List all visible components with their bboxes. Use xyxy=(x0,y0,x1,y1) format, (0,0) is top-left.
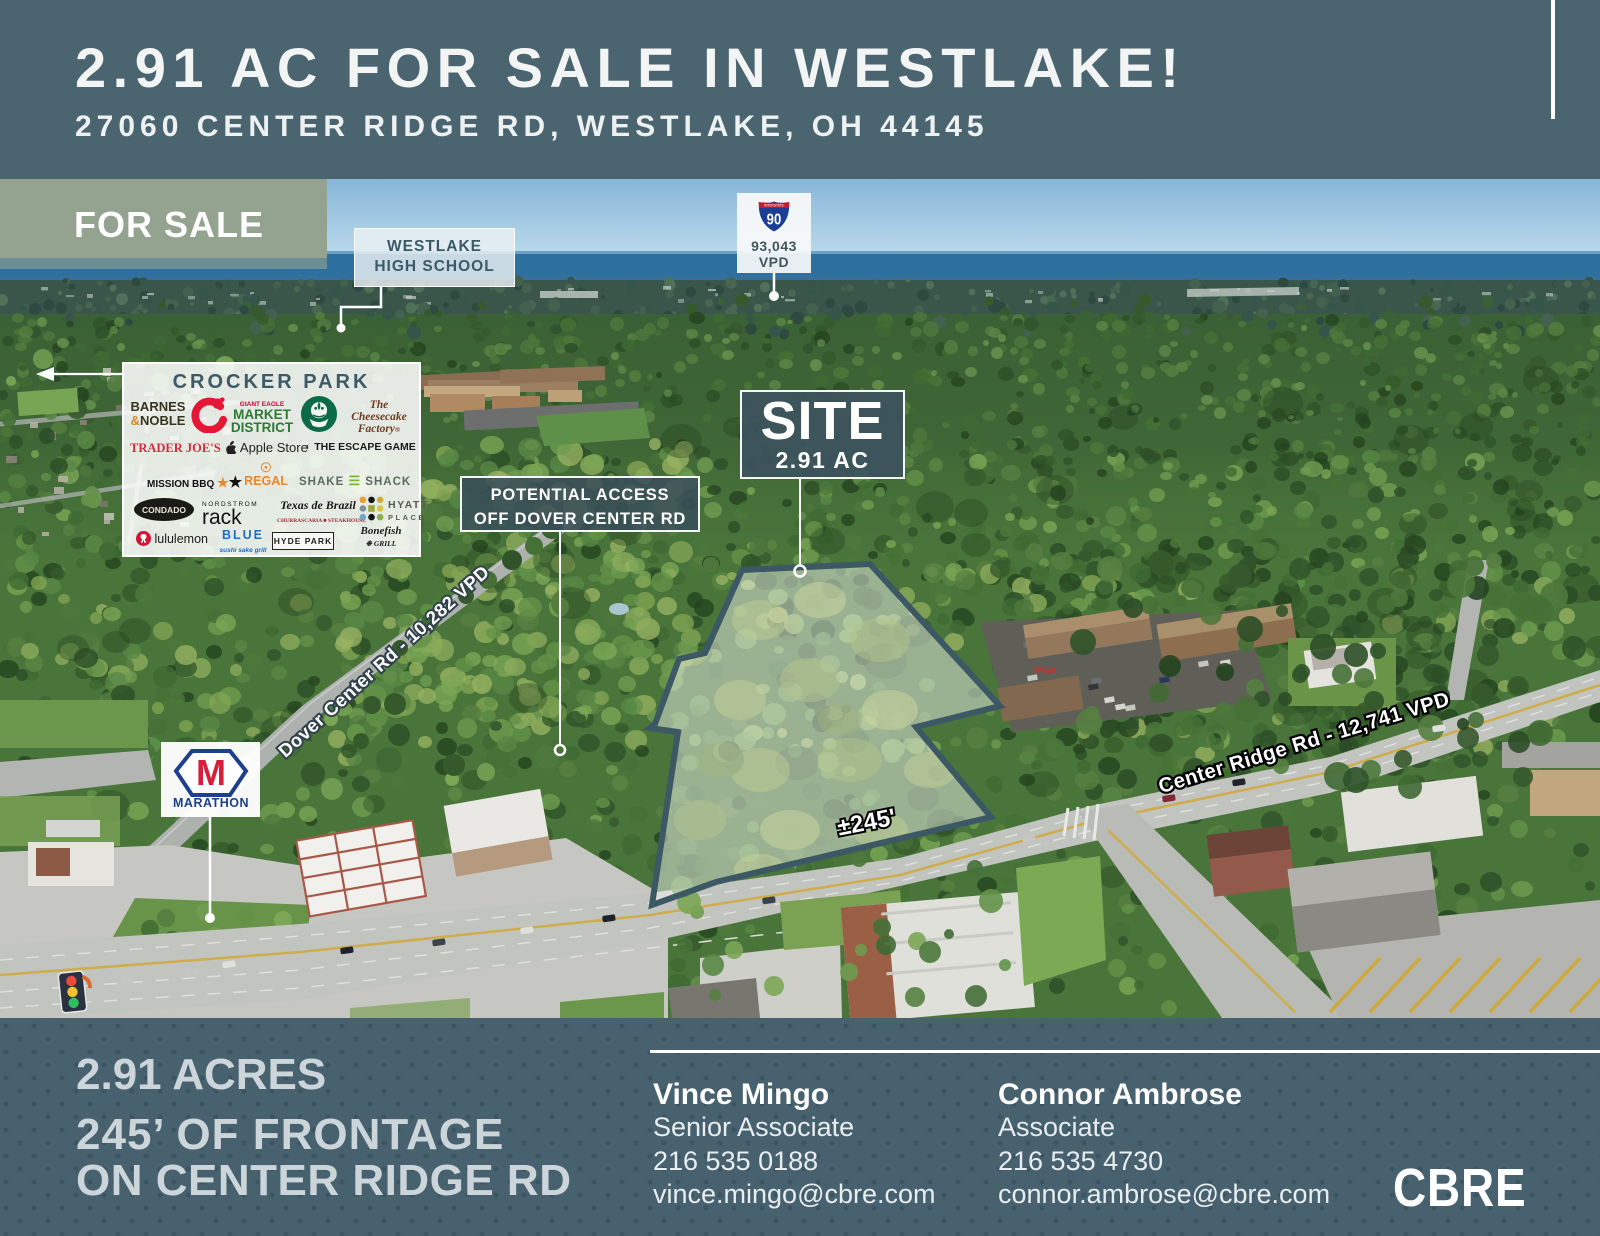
svg-text:INTERSTATE: INTERSTATE xyxy=(764,203,784,207)
svg-text:MARATHON: MARATHON xyxy=(173,796,249,810)
svg-text:90: 90 xyxy=(767,211,782,228)
svg-text:CONDADO: CONDADO xyxy=(142,505,186,515)
svg-text:M: M xyxy=(196,752,226,793)
